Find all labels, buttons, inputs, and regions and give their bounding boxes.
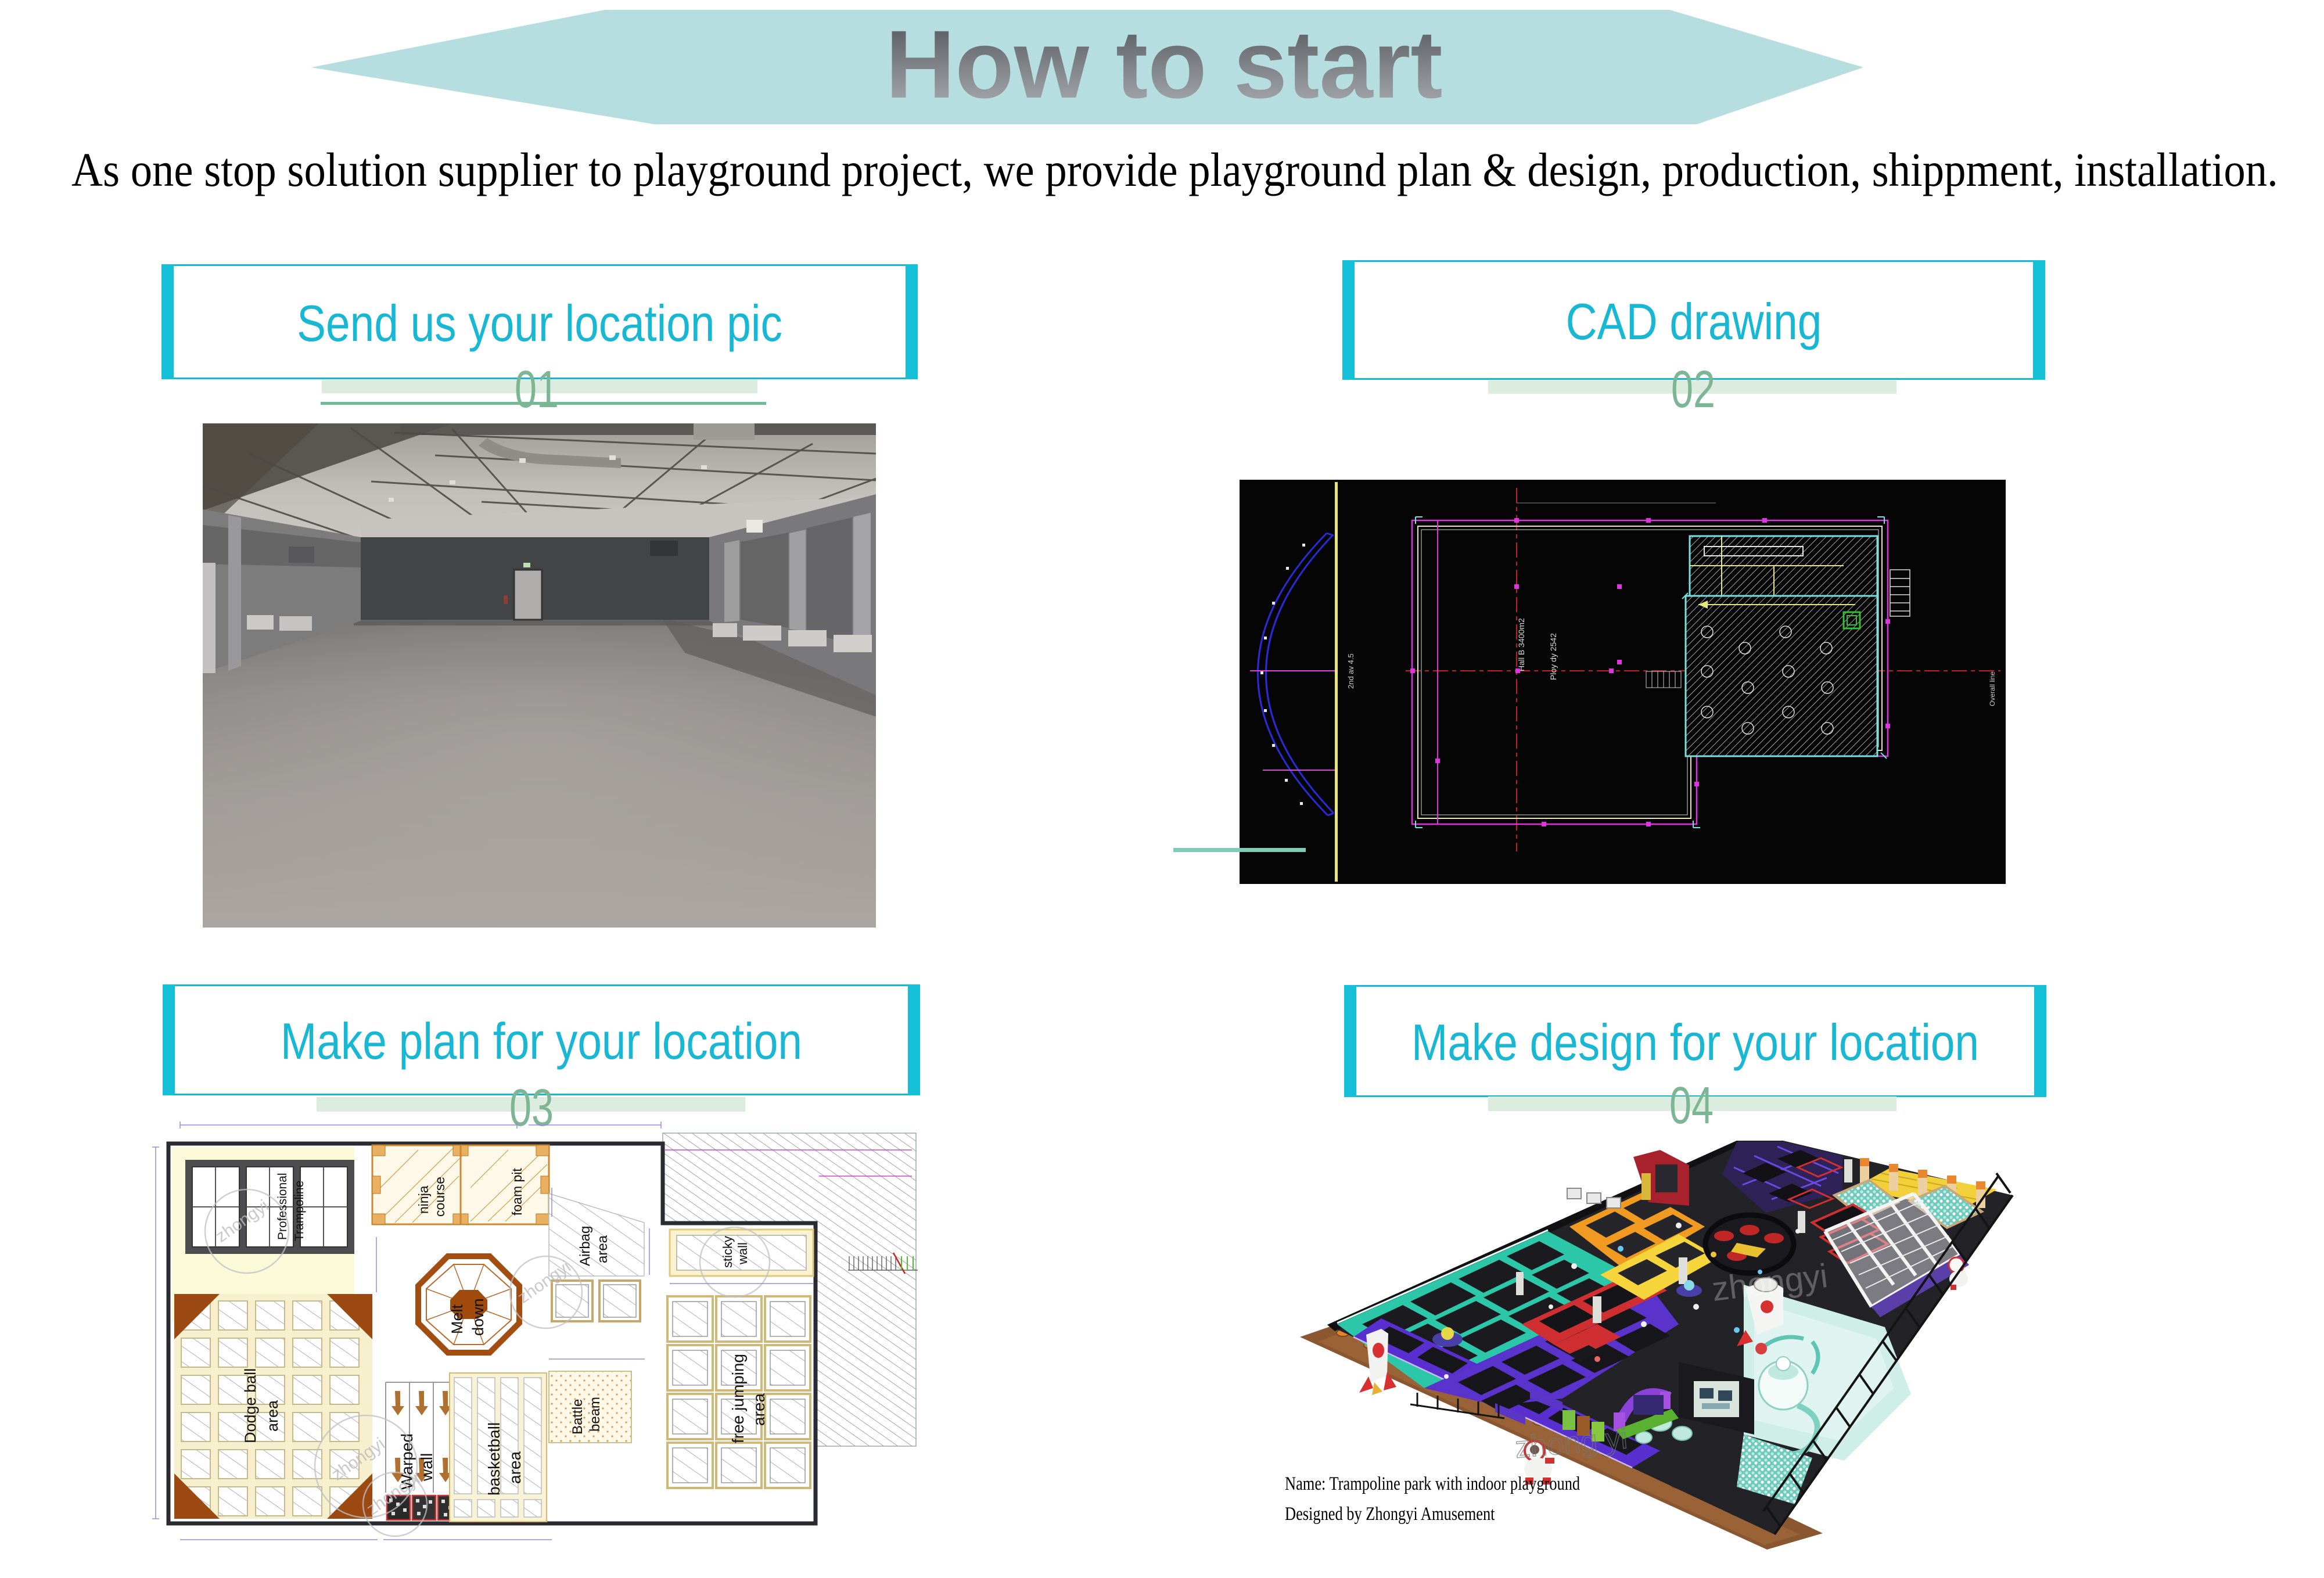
svg-text:area: area xyxy=(264,1400,281,1432)
svg-text:Battle: Battle xyxy=(570,1399,586,1435)
svg-text:wall: wall xyxy=(418,1453,436,1482)
svg-text:course: course xyxy=(432,1177,447,1217)
svg-text:foam pit: foam pit xyxy=(509,1168,525,1216)
svg-text:sticky: sticky xyxy=(720,1236,735,1268)
svg-text:free jumping: free jumping xyxy=(729,1354,747,1443)
svg-text:area: area xyxy=(506,1451,524,1484)
svg-text:wall: wall xyxy=(735,1242,750,1265)
svg-text:ninja: ninja xyxy=(416,1185,431,1214)
svg-text:2nd av 4.5: 2nd av 4.5 xyxy=(1346,653,1355,689)
svg-text:Hall B 3400m2: Hall B 3400m2 xyxy=(1517,618,1526,671)
svg-text:area: area xyxy=(750,1393,768,1426)
svg-text:Airbag: Airbag xyxy=(577,1226,593,1266)
svg-text:beam: beam xyxy=(587,1397,603,1432)
svg-text:Ploy dy 2542: Ploy dy 2542 xyxy=(1549,633,1558,680)
svg-text:basketball: basketball xyxy=(485,1422,503,1496)
svg-text:down: down xyxy=(469,1298,487,1336)
svg-text:Overall line: Overall line xyxy=(1988,671,1996,706)
svg-text:Dodge ball: Dodge ball xyxy=(242,1368,259,1443)
svg-text:area: area xyxy=(595,1235,610,1263)
svg-text:Melt: Melt xyxy=(448,1304,466,1334)
svg-text:Professional: Professional xyxy=(276,1173,289,1240)
svg-text:Trampoline: Trampoline xyxy=(293,1181,306,1241)
